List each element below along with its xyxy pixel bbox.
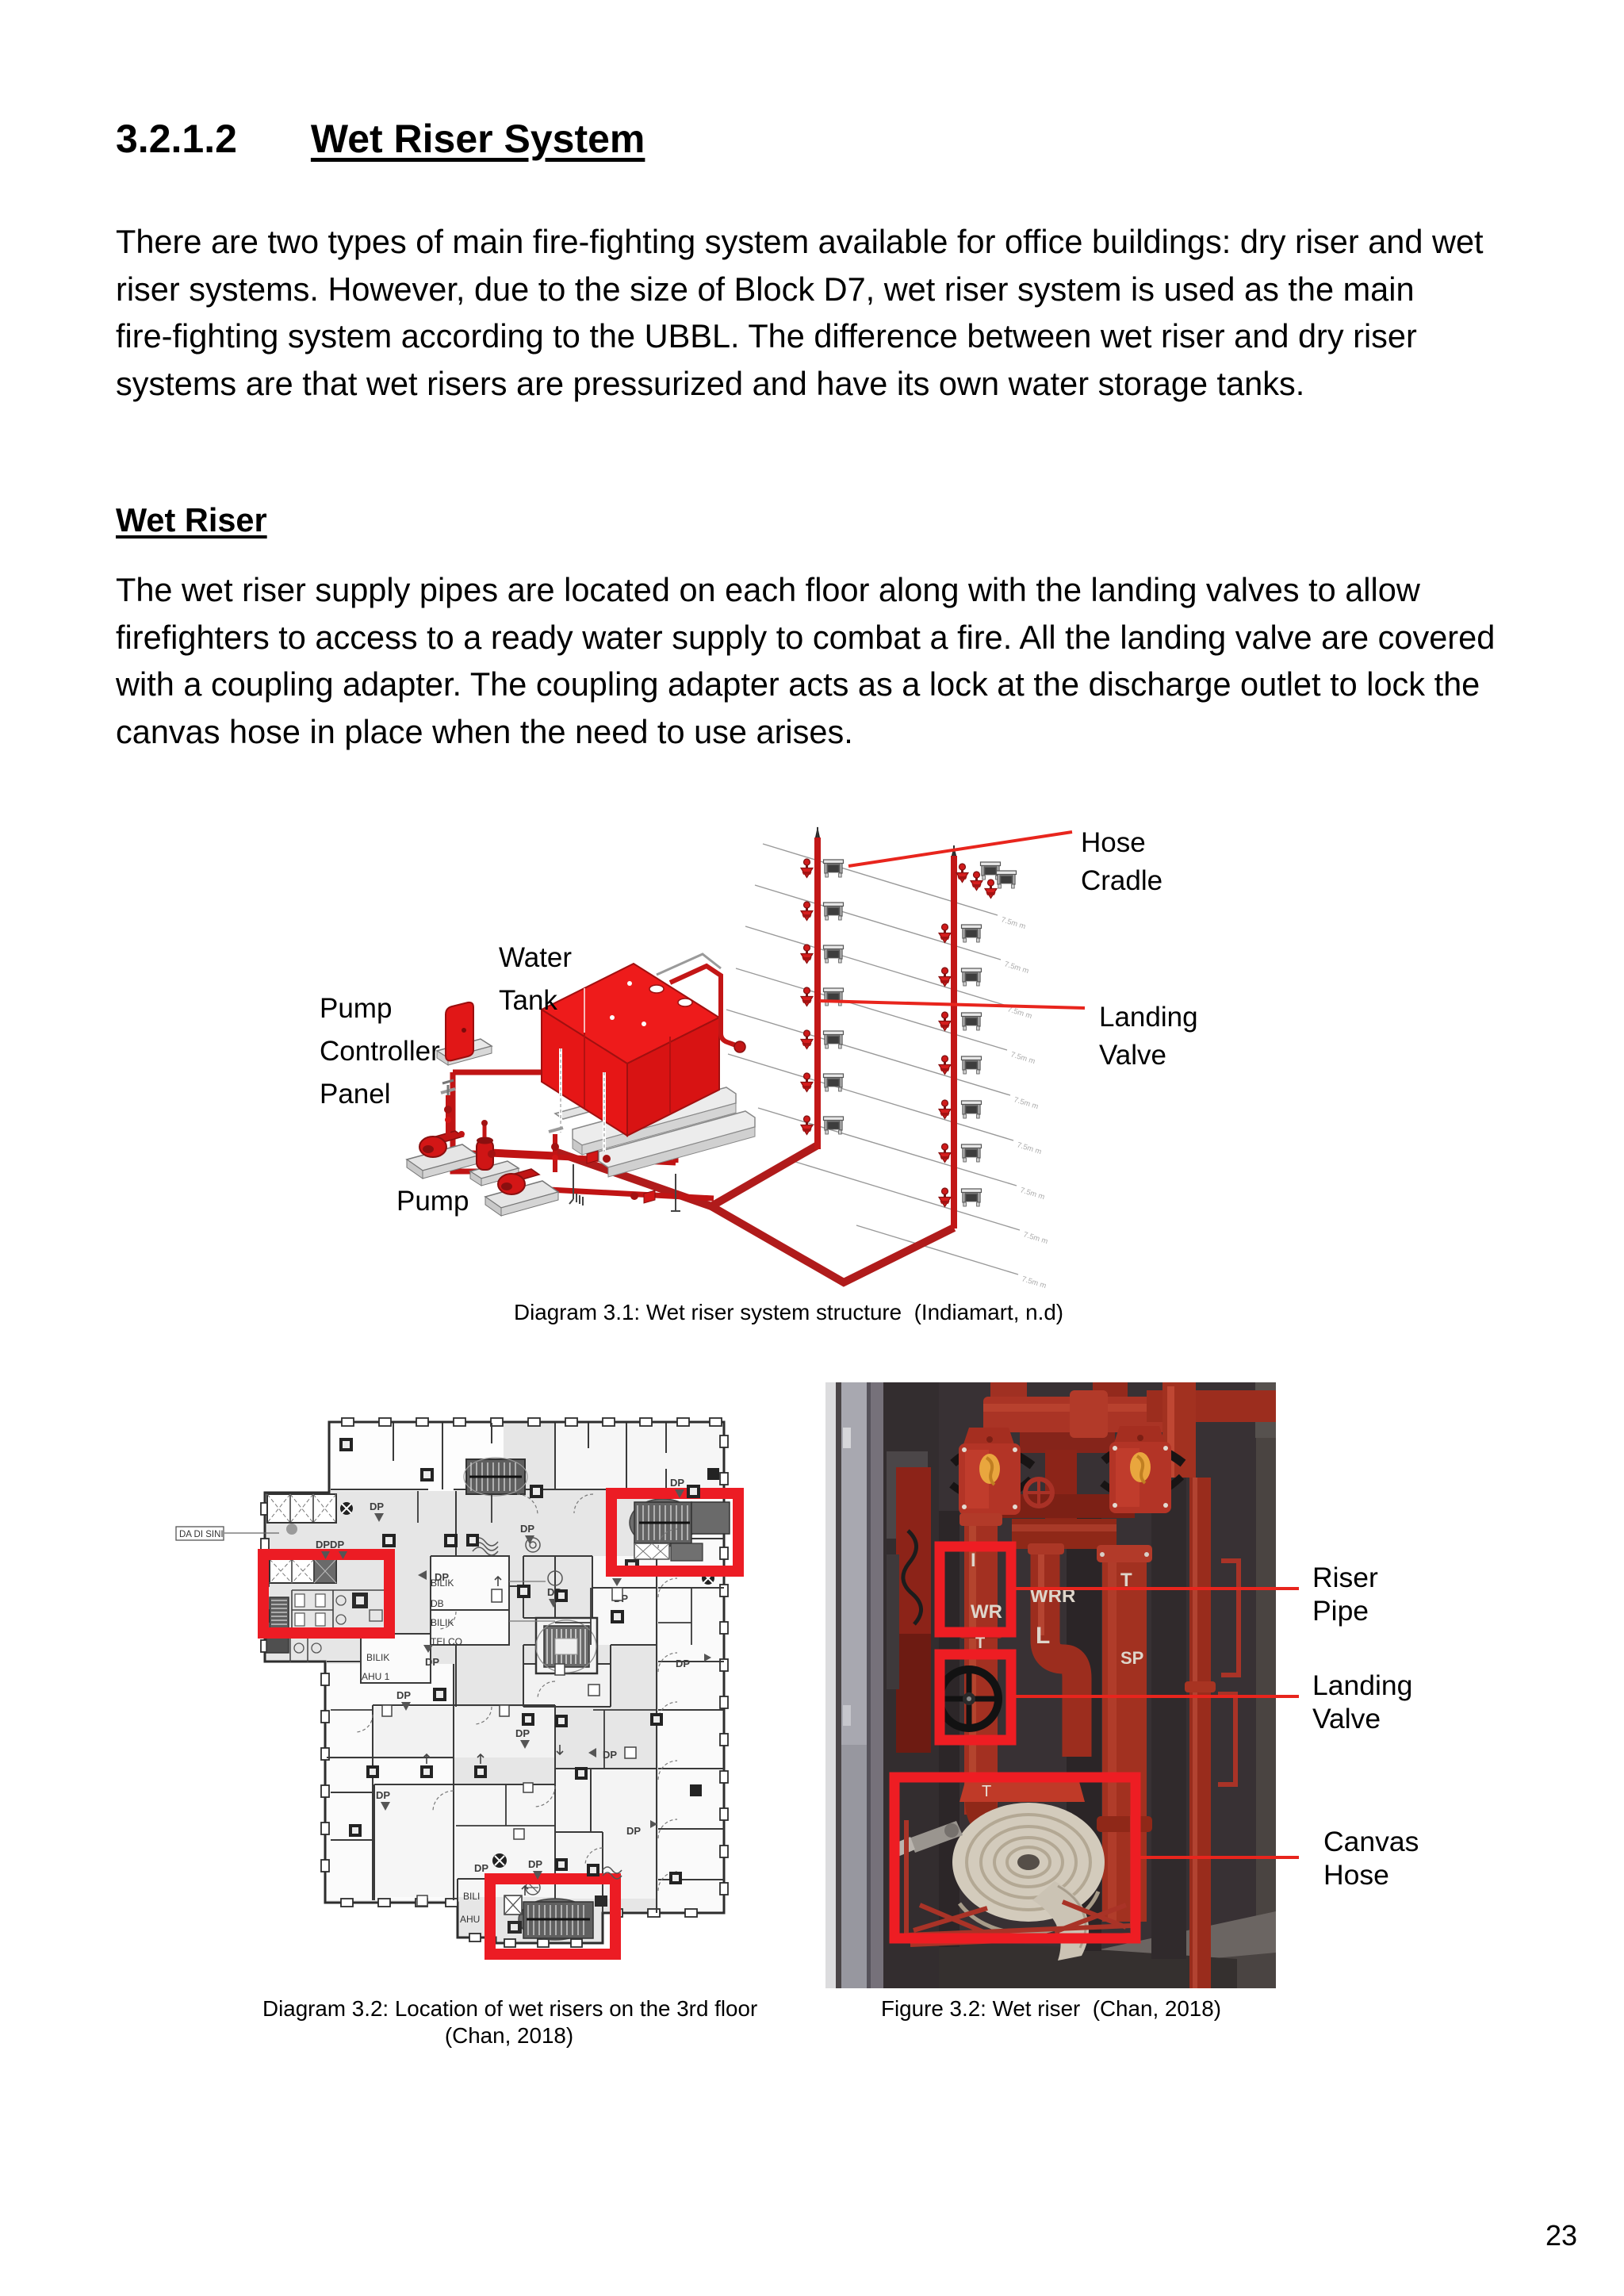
svg-text:SP: SP [1120,1648,1143,1668]
svg-text:T: T [982,1783,991,1800]
svg-text:L: L [1036,1623,1050,1649]
svg-text:7.5m m: 7.5m m [1021,1274,1048,1290]
svg-text:7.5m m: 7.5m m [1022,1230,1049,1246]
svg-text:BILI: BILI [463,1891,480,1902]
svg-text:7.5m m: 7.5m m [1019,1186,1046,1202]
svg-text:DB: DB [431,1598,444,1609]
svg-text:DA DI SINI: DA DI SINI [179,1530,224,1539]
svg-text:7.5m m: 7.5m m [1016,1140,1043,1156]
svg-text:BILIK: BILIK [366,1652,389,1663]
svg-text:DP: DP [396,1689,411,1701]
svg-text:DP: DP [515,1727,530,1739]
svg-text:TELCO: TELCO [431,1636,462,1647]
svg-text:DP: DP [370,1501,384,1512]
svg-text:DP: DP [603,1749,617,1761]
svg-text:I: I [971,1550,976,1571]
svg-text:DP: DP [670,1477,684,1489]
svg-text:DP: DP [528,1858,542,1870]
svg-text:7.5m m: 7.5m m [1003,960,1030,976]
svg-text:DP: DP [474,1862,488,1874]
svg-text:AHU 1: AHU 1 [362,1671,390,1682]
svg-text:DP: DP [520,1523,534,1535]
svg-text:WR: WR [971,1601,1002,1623]
svg-text:BILIK: BILIK [431,1577,454,1589]
svg-text:DPDP: DPDP [316,1539,344,1550]
svg-text:DP: DP [626,1825,641,1837]
svg-text:7.5m m: 7.5m m [1000,915,1027,931]
svg-text:DP: DP [425,1656,439,1668]
svg-text:DP: DP [676,1658,690,1669]
svg-text:BILIK: BILIK [431,1617,454,1628]
svg-text:7.5m m: 7.5m m [1013,1095,1040,1111]
svg-text:AHU: AHU [460,1914,480,1925]
svg-text:DP: DP [376,1789,390,1801]
svg-text:7.5m m: 7.5m m [1009,1050,1036,1066]
